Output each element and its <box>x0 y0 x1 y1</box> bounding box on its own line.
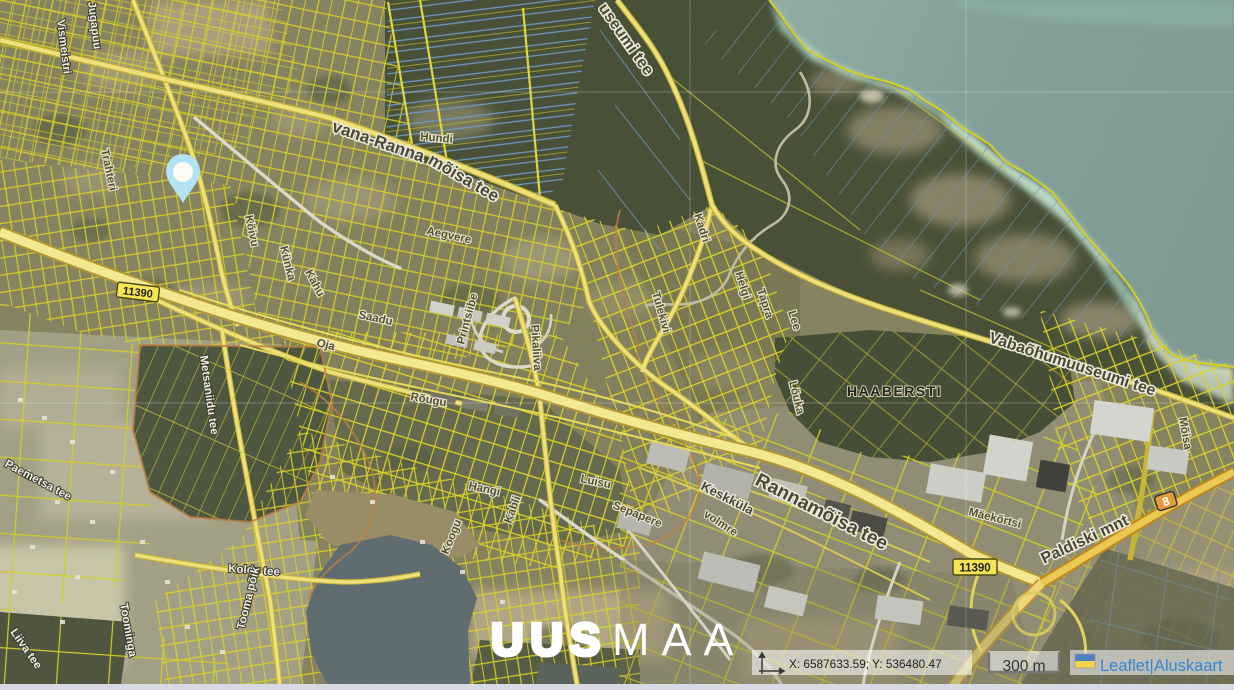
svg-text:11390: 11390 <box>959 563 990 575</box>
svg-text:Leaflet|Aluskaart: Leaflet|Aluskaart <box>1100 657 1223 675</box>
svg-text:HAABERSTI: HAABERSTI <box>847 383 942 399</box>
svg-text:UUS: UUS <box>491 614 607 665</box>
svg-text:MAA: MAA <box>612 614 746 665</box>
svg-text:X: 6587633.59; Y: 536480.47: X: 6587633.59; Y: 536480.47 <box>789 657 942 671</box>
svg-text:300 m: 300 m <box>1002 658 1045 675</box>
